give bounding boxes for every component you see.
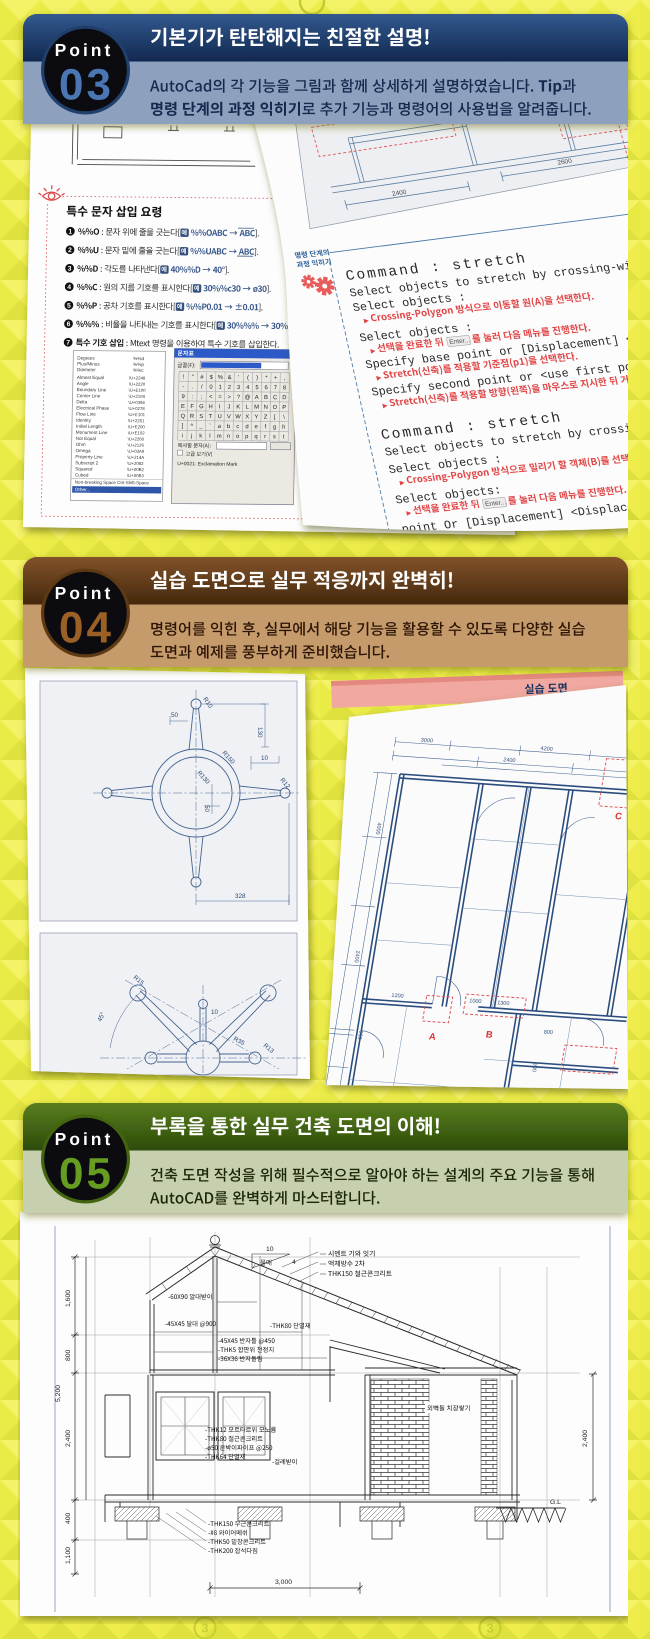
svg-text:Initial Length: Initial Length <box>76 424 103 429</box>
svg-text:3: 3 <box>486 1621 493 1636</box>
svg-text:Diameter: Diameter <box>77 367 96 372</box>
svg-text:c: c <box>236 424 239 430</box>
svg-text:P: P <box>282 405 286 411</box>
svg-text:1: 1 <box>218 385 221 391</box>
svg-text:&: & <box>228 375 232 381</box>
svg-text:\U+214A: \U+214A <box>127 455 144 460</box>
svg-text:Not Equal: Not Equal <box>76 436 96 441</box>
svg-text:1,100: 1,100 <box>65 1547 72 1564</box>
svg-text:Non-breaking Space Ctrl-Shift: Non-breaking Space Ctrl-Shift-Space <box>75 480 150 486</box>
svg-text:5: 5 <box>67 303 71 310</box>
svg-text:o: o <box>236 434 239 440</box>
svg-text:l: l <box>209 434 210 440</box>
svg-text:O: O <box>273 405 278 411</box>
svg-text:%%p: %%p <box>133 362 144 367</box>
svg-text:1300: 1300 <box>497 1000 510 1007</box>
svg-text:G.L: G.L <box>550 1499 561 1506</box>
svg-text:Property Line: Property Line <box>75 454 103 459</box>
svg-text:328: 328 <box>235 893 246 900</box>
svg-text:F: F <box>190 404 194 410</box>
svg-text:K: K <box>236 405 240 411</box>
svg-text:h: h <box>282 425 285 431</box>
svg-text:5,200: 5,200 <box>55 1385 62 1402</box>
svg-text:Cubed: Cubed <box>75 473 89 478</box>
svg-text:Electrical Phase: Electrical Phase <box>76 405 109 410</box>
svg-text:%: % <box>218 375 223 381</box>
svg-text:50: 50 <box>203 805 210 813</box>
svg-text:Plus/Minus: Plus/Minus <box>77 361 100 366</box>
svg-text:2400: 2400 <box>503 757 516 764</box>
svg-text:N: N <box>264 405 268 411</box>
svg-text:8: 8 <box>283 385 286 391</box>
svg-text:Monument Line: Monument Line <box>76 430 108 435</box>
svg-text:9: 9 <box>181 394 184 400</box>
svg-text:1200: 1200 <box>627 766 640 773</box>
svg-text:6: 6 <box>67 321 71 328</box>
svg-text:X: X <box>245 414 249 420</box>
svg-text:2,400: 2,400 <box>65 1430 72 1447</box>
svg-text:\U+2260: \U+2260 <box>128 436 145 441</box>
svg-text:^: ^ <box>190 424 193 430</box>
svg-text:\U+2104: \U+2104 <box>129 394 146 399</box>
svg-text:M: M <box>254 405 259 411</box>
svg-text:g: g <box>273 424 276 430</box>
svg-text:%%d: %%d <box>133 356 144 361</box>
svg-text:3000: 3000 <box>420 738 433 745</box>
svg-text:3: 3 <box>237 385 240 391</box>
svg-text:\U+2082: \U+2082 <box>127 461 144 466</box>
svg-text:j: j <box>190 433 192 439</box>
svg-text:3,000: 3,000 <box>275 1579 292 1586</box>
svg-text:@: @ <box>245 395 251 401</box>
svg-text:-: - <box>182 384 184 390</box>
svg-text:n: n <box>227 434 230 440</box>
svg-text:2,400: 2,400 <box>582 1430 589 1447</box>
svg-text:%%c: %%c <box>133 368 144 373</box>
svg-text:Z: Z <box>264 415 268 421</box>
svg-text:": " <box>192 375 194 381</box>
svg-text:10: 10 <box>261 755 269 762</box>
svg-text:S: S <box>199 414 203 420</box>
svg-text:\U+E200: \U+E200 <box>128 424 146 429</box>
svg-text:`: ` <box>209 424 211 430</box>
svg-text:\U+E100: \U+E100 <box>129 388 147 393</box>
svg-text:Angle: Angle <box>77 381 89 386</box>
svg-text:d: d <box>245 424 248 430</box>
svg-text:1000: 1000 <box>469 998 482 1005</box>
svg-text:Degrees: Degrees <box>77 356 95 361</box>
svg-text:\U+2261: \U+2261 <box>128 418 145 423</box>
svg-text:\U+2220: \U+2220 <box>129 382 146 387</box>
svg-text:Flow Line: Flow Line <box>76 412 96 417</box>
svg-text:6: 6 <box>264 385 267 391</box>
svg-text:\U+00B2: \U+00B2 <box>127 467 145 472</box>
svg-text:U+0021: Exclamation Mark: U+0021: Exclamation Mark <box>177 461 238 468</box>
svg-text:\U+0278: \U+0278 <box>128 406 145 411</box>
svg-text:7: 7 <box>274 385 277 391</box>
svg-text:2: 2 <box>68 247 72 254</box>
svg-text:Boundary Line: Boundary Line <box>77 387 107 392</box>
svg-text:\U+E102: \U+E102 <box>128 430 146 435</box>
svg-text:J: J <box>227 404 230 410</box>
svg-text:\U+2126: \U+2126 <box>128 443 145 448</box>
svg-text:q: q <box>254 434 257 440</box>
svg-text:3: 3 <box>68 266 72 273</box>
svg-text:s: s <box>273 434 276 440</box>
svg-text:Identity: Identity <box>76 418 92 423</box>
svg-text:H: H <box>208 404 212 410</box>
svg-text:V: V <box>227 414 231 420</box>
svg-text:Q: Q <box>180 414 185 420</box>
svg-text:800: 800 <box>65 1349 72 1361</box>
svg-text:Squared: Squared <box>75 466 93 471</box>
svg-text:D: D <box>282 395 286 401</box>
svg-text:3: 3 <box>201 1621 208 1636</box>
svg-text:\U+0394: \U+0394 <box>128 400 145 405</box>
svg-text:400: 400 <box>65 1512 72 1524</box>
svg-text:\U+2248: \U+2248 <box>129 375 146 380</box>
svg-text:Center Line: Center Line <box>77 393 101 398</box>
svg-text:e: e <box>255 424 258 430</box>
svg-text:10: 10 <box>266 1246 274 1253</box>
svg-text:\U+E101: \U+E101 <box>128 412 146 417</box>
svg-text:i: i <box>182 433 183 439</box>
svg-text:T: T <box>209 414 213 420</box>
svg-text:C: C <box>273 395 277 401</box>
svg-text:b: b <box>227 424 230 430</box>
svg-text:r: r <box>264 434 266 440</box>
svg-text:50: 50 <box>171 712 179 719</box>
svg-text:Subscript 2: Subscript 2 <box>75 460 99 465</box>
svg-text:Delta: Delta <box>76 399 87 404</box>
svg-text:U: U <box>217 414 221 420</box>
svg-text:k: k <box>199 434 202 440</box>
svg-text:Omega: Omega <box>75 448 91 453</box>
svg-text:Other...: Other... <box>75 487 91 493</box>
svg-text:G: G <box>199 404 204 410</box>
svg-text:E: E <box>181 404 185 410</box>
svg-text:4: 4 <box>67 284 71 291</box>
svg-text:Y: Y <box>254 414 258 420</box>
svg-text:B: B <box>264 395 268 401</box>
svg-text:1,600: 1,600 <box>65 1290 72 1307</box>
svg-text:1: 1 <box>68 229 72 236</box>
svg-text:R: R <box>190 414 194 420</box>
svg-text:800: 800 <box>543 1030 553 1037</box>
svg-text:4200: 4200 <box>540 746 553 753</box>
svg-text:0: 0 <box>209 385 212 391</box>
svg-text:p: p <box>245 434 248 440</box>
svg-text:10: 10 <box>211 1009 219 1016</box>
svg-text:W: W <box>235 414 241 420</box>
svg-text:): ) <box>256 375 258 381</box>
svg-text:7: 7 <box>66 340 70 347</box>
svg-text:2: 2 <box>228 385 231 391</box>
svg-text:130: 130 <box>256 727 263 738</box>
svg-text:Ohm: Ohm <box>76 442 86 447</box>
svg-text:\U+00B3: \U+00B3 <box>127 473 145 478</box>
svg-text:(: ( <box>247 375 249 381</box>
svg-text:\U+03A9: \U+03A9 <box>127 449 145 454</box>
svg-text:Almost Equal: Almost Equal <box>77 375 104 380</box>
svg-text:1200: 1200 <box>391 993 404 1000</box>
svg-text:A: A <box>255 395 259 401</box>
svg-text:': ' <box>238 375 239 381</box>
svg-text:5: 5 <box>255 385 258 391</box>
svg-text:m: m <box>217 434 222 440</box>
